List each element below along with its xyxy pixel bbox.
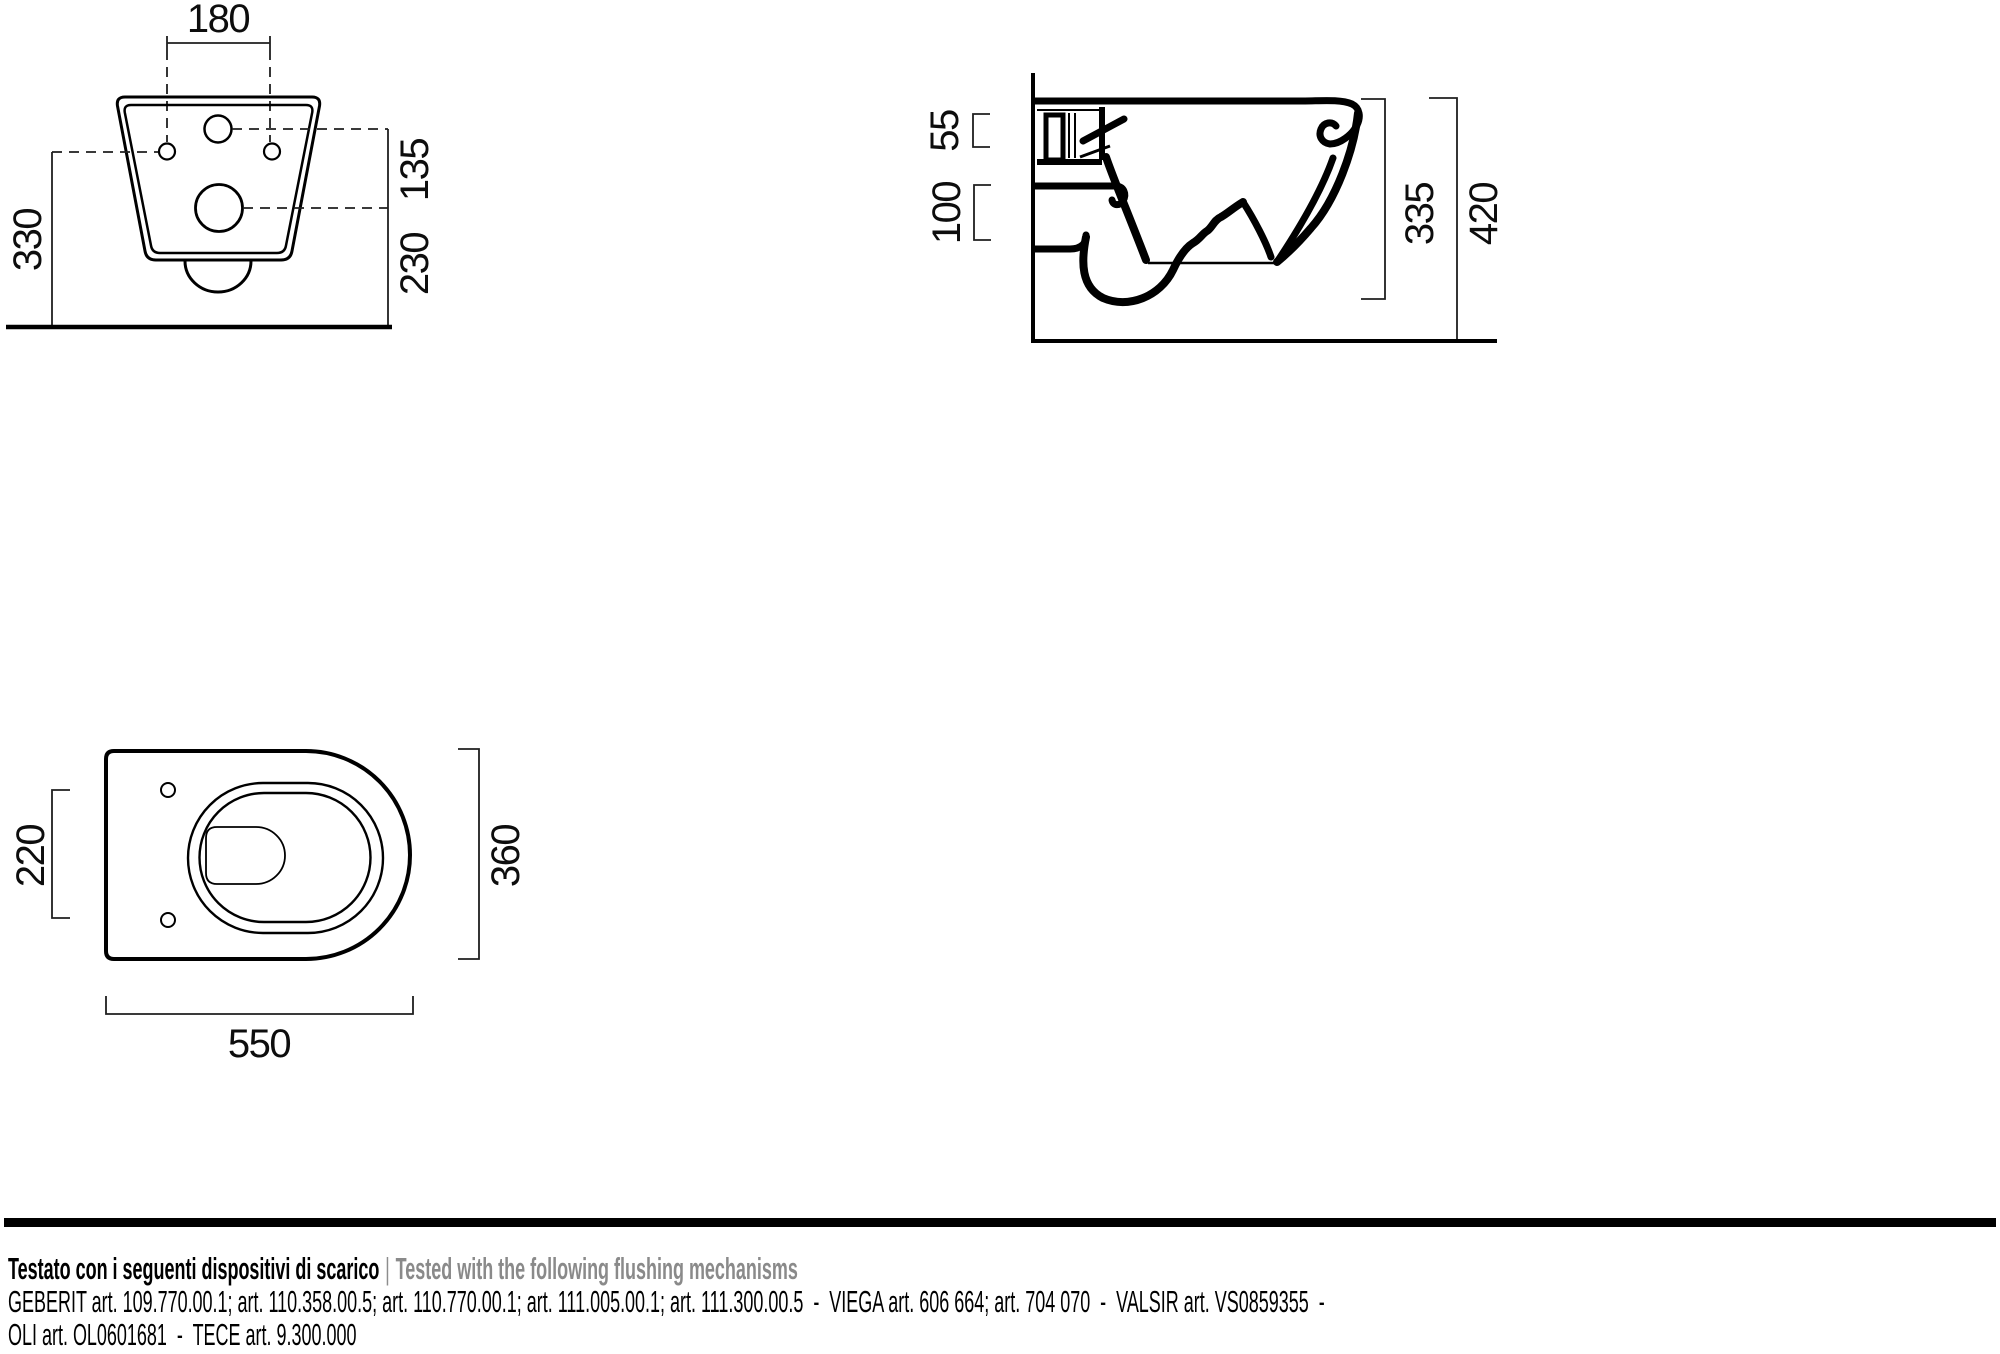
seat-hole-top <box>161 783 175 797</box>
dim-bracket-55 <box>973 114 990 147</box>
dim-label-230: 230 <box>393 233 437 295</box>
mounting-hole-right <box>264 144 280 160</box>
plan-view: 220 360 550 <box>9 749 528 1066</box>
bowl-back-wall <box>1106 157 1146 260</box>
dim-label-550: 550 <box>228 1022 290 1066</box>
side-view: 55 100 335 420 <box>923 73 1506 341</box>
technical-drawing: 180 330 135 230 <box>0 0 2000 1210</box>
trap-bulge-arc <box>185 261 251 292</box>
front-view: 180 330 135 230 <box>6 0 437 327</box>
dim-label-335: 335 <box>1398 183 1442 245</box>
dim-label-330: 330 <box>6 209 50 271</box>
tested-with-italian: Testato con i seguenti dispositivi di sc… <box>8 1251 379 1286</box>
front-outline-outer <box>117 97 319 260</box>
outlet-channel-bottom <box>1035 235 1086 249</box>
spud-socket <box>1046 115 1063 160</box>
tested-with-english: Tested with the following flushing mecha… <box>396 1251 798 1286</box>
dim-label-55: 55 <box>923 110 967 152</box>
siphon-trap <box>1083 202 1243 302</box>
weir-face <box>1243 202 1271 257</box>
dim-label-180: 180 <box>187 0 249 41</box>
spud-inner-lines <box>1069 113 1075 158</box>
dim-bracket-220 <box>52 790 70 918</box>
dim-label-135: 135 <box>393 139 437 201</box>
dim-bracket-100 <box>974 185 991 240</box>
dim-label-220: 220 <box>9 825 53 887</box>
tested-with-line: Testato con i seguenti dispositivi di sc… <box>8 1252 1980 1285</box>
mechanisms-line-2: OLI art. OL0601681 - TECE art. 9.300.000 <box>8 1318 1980 1351</box>
water-inlet-hole <box>205 116 232 143</box>
seat-hole-bottom <box>161 913 175 927</box>
dim-label-360: 360 <box>484 825 528 887</box>
dim-label-420: 420 <box>1462 183 1506 245</box>
mounting-hole-left <box>159 144 175 160</box>
dim-bracket-550 <box>106 996 413 1014</box>
dim-label-100: 100 <box>925 182 969 244</box>
mechanisms-line-1: GEBERIT art. 109.770.00.1; art. 110.358.… <box>8 1285 1980 1318</box>
outlet-hole <box>196 185 243 232</box>
dim-bracket-335 <box>1361 99 1385 299</box>
sump-outline <box>206 827 285 884</box>
separator-bar <box>4 1218 1996 1227</box>
dim-bracket-360 <box>458 749 479 959</box>
footer-text: Testato con i seguenti dispositivi di sc… <box>8 1252 1998 1351</box>
language-divider: | <box>385 1251 390 1286</box>
outlet-channel-top <box>1035 186 1125 205</box>
